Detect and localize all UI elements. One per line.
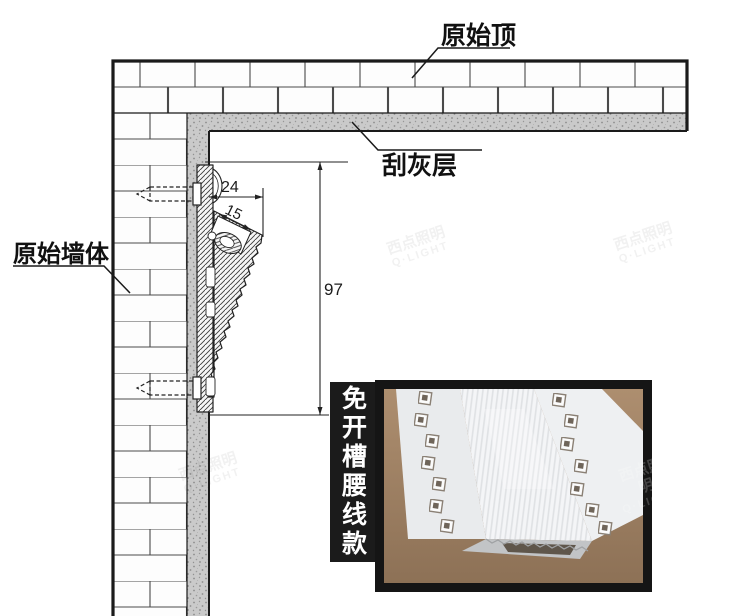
product-name-vertical-text: 免开槽腰线款 (335, 385, 371, 559)
screw-head (193, 183, 201, 205)
screw-head (193, 377, 201, 399)
arrowhead-bottom (318, 407, 323, 415)
product-name-bar: 免开槽腰线款 (330, 382, 375, 562)
product-photo-inset: 西点照明 Q·LIGHT (375, 380, 652, 592)
callout-plaster-label: 刮灰层 (382, 152, 457, 180)
profile-t-slot-upper (206, 267, 215, 287)
arrowhead-top (318, 162, 323, 170)
plaster-ceiling-strip (187, 113, 687, 131)
profile-notch-circle (208, 232, 216, 240)
ceiling-brick-section (113, 61, 687, 113)
dimension-value: 97 (324, 280, 343, 299)
callout-wall-label: 原始墙体 (13, 240, 110, 268)
screenshot-root: 24 15 97 原始顶 刮灰层 原始墙体 (0, 0, 750, 616)
ceiling-bricks (113, 61, 687, 113)
profile-t-slot-lower (206, 302, 215, 317)
dimension-value: 24 (221, 179, 239, 196)
product-photo (384, 389, 643, 583)
callout-ceiling-label: 原始顶 (441, 22, 516, 50)
arrowhead-right (255, 195, 263, 200)
profile-screw-boss (206, 377, 215, 396)
